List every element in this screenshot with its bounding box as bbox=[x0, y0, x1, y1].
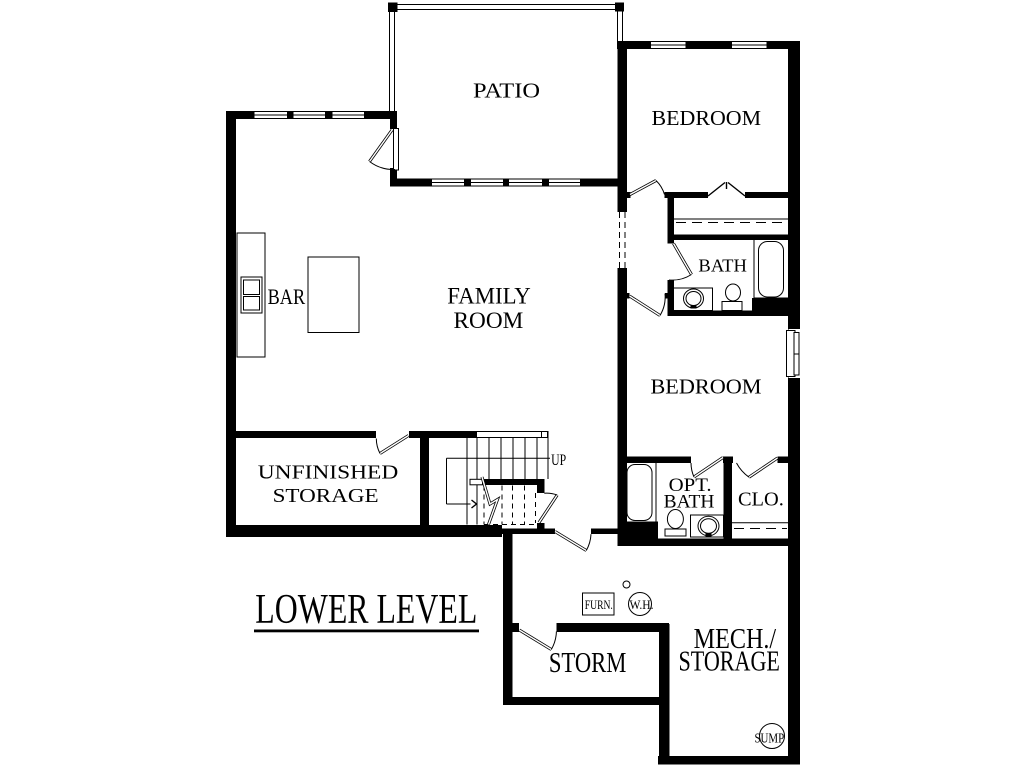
svg-text:FURN.: FURN. bbox=[585, 598, 613, 612]
svg-text:STORAGE: STORAGE bbox=[273, 485, 379, 507]
svg-text:W.H.: W.H. bbox=[630, 598, 654, 612]
svg-text:BAR: BAR bbox=[268, 284, 306, 309]
svg-text:BATH: BATH bbox=[664, 492, 715, 513]
svg-text:PATIO: PATIO bbox=[473, 78, 540, 102]
svg-text:UP: UP bbox=[551, 452, 566, 469]
svg-text:BEDROOM: BEDROOM bbox=[651, 375, 762, 399]
svg-text:FAMILY: FAMILY bbox=[447, 284, 531, 310]
svg-text:STORAGE: STORAGE bbox=[678, 646, 780, 678]
svg-text:UNFINISHED: UNFINISHED bbox=[258, 462, 399, 484]
svg-text:SUMP: SUMP bbox=[754, 731, 784, 746]
svg-text:BEDROOM: BEDROOM bbox=[652, 106, 762, 130]
svg-text:CLO.: CLO. bbox=[738, 489, 784, 511]
svg-text:LOWER LEVEL: LOWER LEVEL bbox=[255, 587, 477, 633]
svg-text:BATH: BATH bbox=[698, 256, 747, 276]
svg-text:STORM: STORM bbox=[549, 647, 627, 679]
svg-text:ROOM: ROOM bbox=[454, 308, 524, 334]
